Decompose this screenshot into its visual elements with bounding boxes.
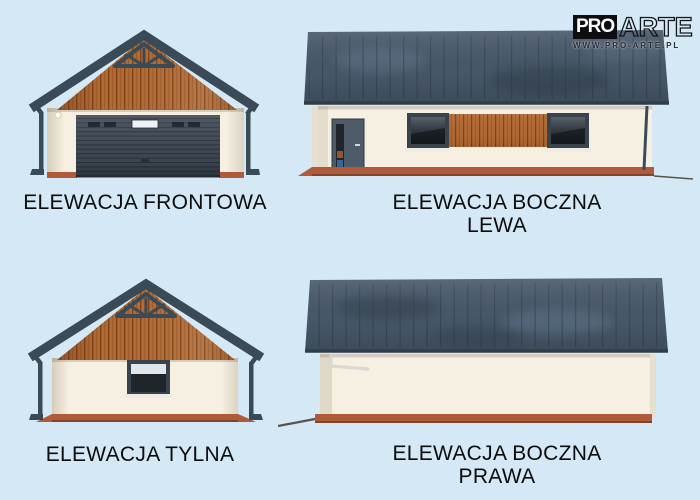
side-right-wall [320,354,650,418]
side-left-door [332,119,364,172]
side-right-plinth [315,414,652,423]
side-left-wood-band [449,114,547,147]
pro-arte-wordmark: PRO ARTE [573,15,697,39]
elevation-side-right-drawing [278,272,678,432]
elevation-front-drawing [20,8,270,183]
door-handle [355,144,360,146]
side-left-window-1 [405,113,451,152]
side-left-ground-line [654,176,693,179]
front-downspout-left [30,106,44,175]
logo-pro-badge: PRO [573,15,617,39]
garage-door-window [132,120,158,128]
side-right-roof [305,278,668,352]
caption-front: ELEWACJA FRONTOWA [23,191,267,214]
rear-plinth [36,414,256,422]
caption-rear: ELEWACJA TYLNA [46,443,235,466]
side-right-corner-return [650,354,656,418]
front-wall-lamp [55,112,61,118]
side-left-corner-return [312,106,318,170]
side-left-window-2 [545,113,591,152]
garage-door-handle [141,159,149,162]
side-left-plinth [298,167,654,176]
rear-downspout-left [29,356,43,420]
front-garage-door [76,115,220,178]
caption-side-left: ELEWACJA BOCZNA LEWA [392,191,601,237]
side-right-ground-line [278,419,315,426]
caption-side-right-label: ELEWACJA BOCZNA [392,442,601,465]
front-downspout-right [246,106,260,175]
logo-website-url: WWW.PRO-ARTE.PL [573,41,697,50]
elevation-sheet: ELEWACJA FRONTOWA ELEWACJA BOCZNA LEWA E… [0,0,700,500]
pro-arte-logo: PRO ARTE WWW.PRO-ARTE.PL [573,15,697,50]
caption-side-left-sublabel: LEWA [392,214,601,237]
caption-side-right-sublabel: PRAWA [392,465,601,488]
rear-downspout-right [249,356,263,420]
logo-arte-text: ARTE [619,15,693,39]
caption-side-right: ELEWACJA BOCZNA PRAWA [392,442,601,488]
caption-side-left-label: ELEWACJA BOCZNA [392,191,601,214]
caption-rear-label: ELEWACJA TYLNA [46,443,235,466]
elevation-rear-drawing [20,272,270,437]
rear-window [124,360,173,398]
caption-front-label: ELEWACJA FRONTOWA [23,191,267,214]
